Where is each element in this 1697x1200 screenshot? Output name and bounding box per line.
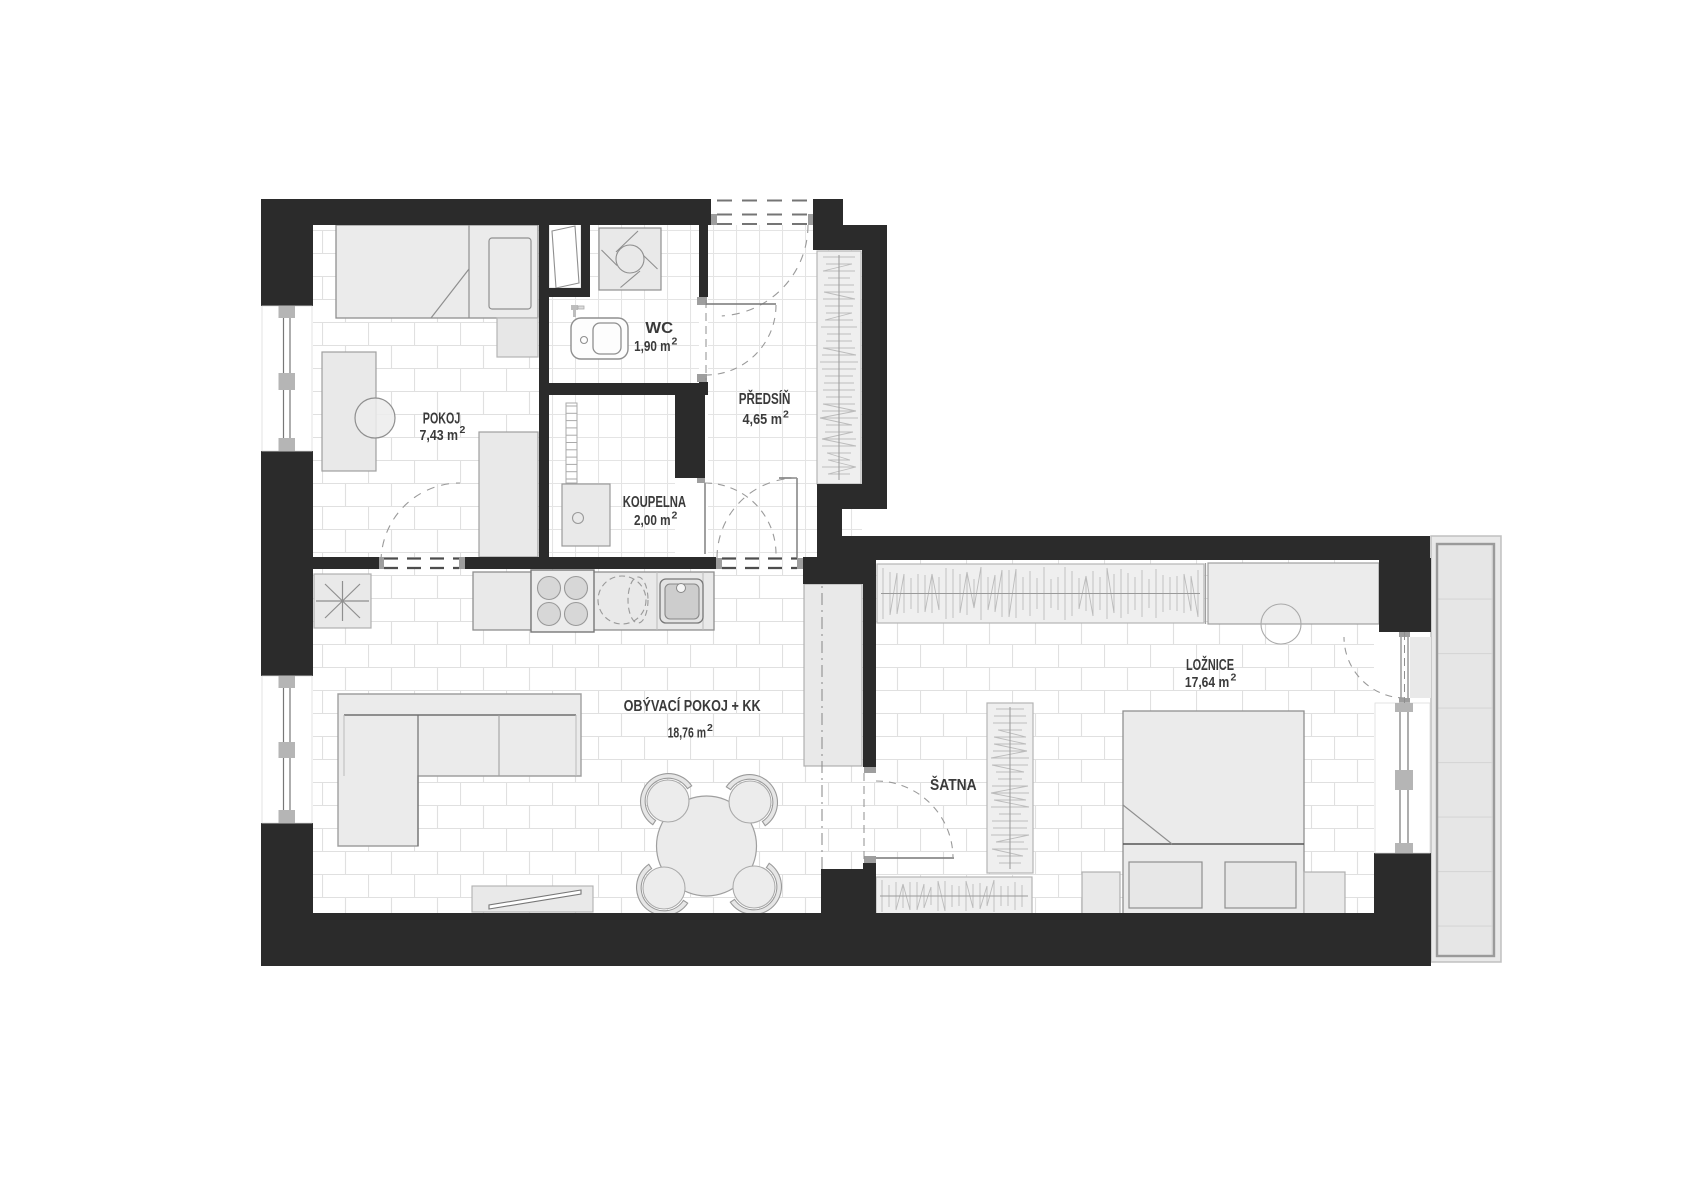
svg-text:4,65 m: 4,65 m: [743, 411, 783, 428]
svg-text:18,76 m: 18,76 m: [668, 725, 706, 742]
svg-text:17,64 m: 17,64 m: [1185, 674, 1229, 691]
svg-text:2: 2: [707, 722, 713, 734]
svg-text:1,90 m: 1,90 m: [634, 338, 671, 355]
svg-text:2: 2: [460, 424, 466, 436]
svg-text:POKOJ: POKOJ: [423, 410, 461, 427]
svg-text:7,43 m: 7,43 m: [420, 427, 459, 444]
svg-text:PŘEDSÍŇ: PŘEDSÍŇ: [739, 390, 791, 408]
svg-text:2: 2: [672, 510, 678, 522]
svg-text:WC: WC: [645, 320, 673, 337]
svg-text:2,00 m: 2,00 m: [634, 512, 671, 529]
svg-text:KOUPELNA: KOUPELNA: [623, 494, 686, 511]
svg-text:2: 2: [672, 336, 678, 348]
svg-text:2: 2: [1231, 672, 1237, 684]
svg-text:ŠATNA: ŠATNA: [930, 776, 977, 794]
svg-text:2: 2: [783, 409, 789, 421]
svg-text:OBÝVACÍ POKOJ + KK: OBÝVACÍ POKOJ + KK: [624, 697, 762, 715]
svg-text:LOŽNICE: LOŽNICE: [1186, 656, 1234, 674]
